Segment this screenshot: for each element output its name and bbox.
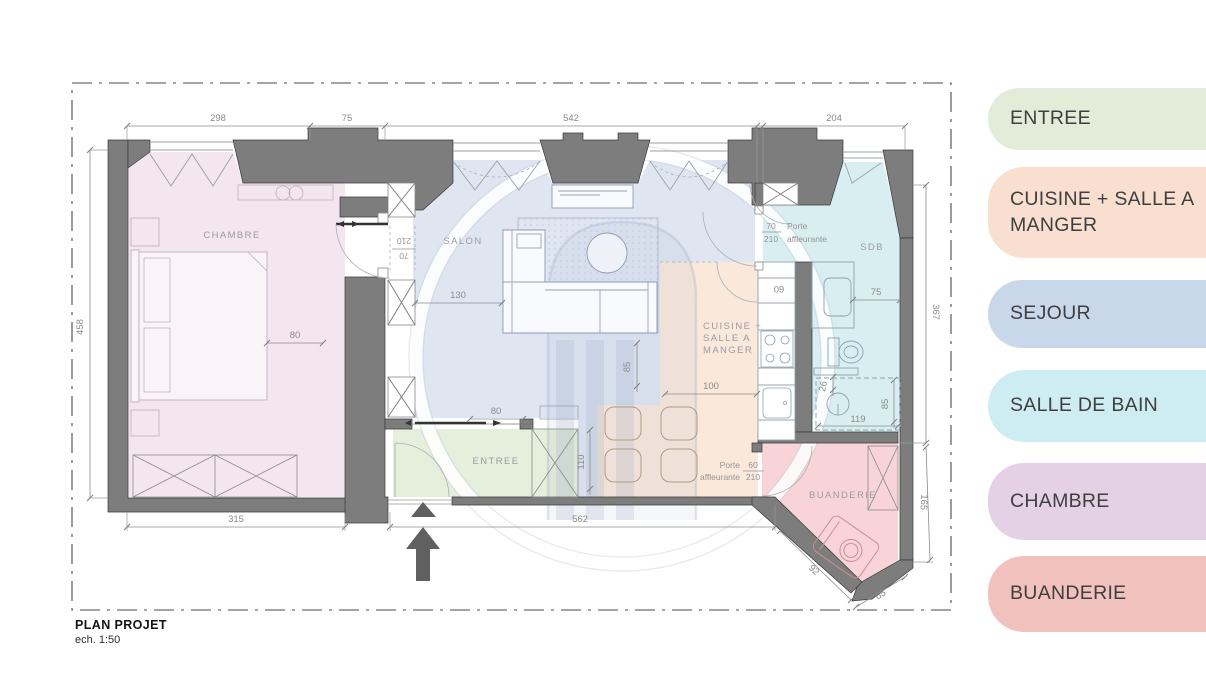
screenshot-root: 298 75 542 204 458 315 562 367 165 92 65…: [0, 0, 1206, 700]
entrance-marker: [406, 502, 440, 581]
label-salon: SALON: [443, 236, 482, 247]
svg-text:70: 70: [766, 221, 776, 231]
label-cuisine-2: SALLE A: [703, 333, 751, 344]
legend-label: ENTREE: [1010, 106, 1206, 131]
title-block: PLAN PROJET ech. 1:50: [75, 618, 167, 646]
legend-item-entree: ENTREE: [988, 88, 1206, 150]
legend-label: SEJOUR: [1010, 301, 1206, 326]
legend-item-salle-de-bain: SALLE DE BAIN: [988, 370, 1206, 442]
dim-salon-130: 130: [450, 290, 466, 301]
dim-entree-110: 110: [576, 454, 587, 469]
legend-item-cuisine: CUISINE + SALLE A MANGER: [988, 167, 1206, 258]
dim-entree-80: 80: [491, 406, 502, 417]
dim-bottom-562: 562: [572, 514, 588, 525]
legend-item-sejour: SEJOUR: [988, 280, 1206, 348]
dim-top-298: 298: [210, 113, 226, 124]
wall-right: [900, 238, 913, 560]
wall-top-mass-b: [540, 133, 650, 183]
shaft: [388, 377, 415, 417]
door-jamb: [378, 213, 388, 223]
svg-text:affleurante: affleurante: [787, 234, 827, 244]
svg-text:60: 60: [748, 460, 758, 470]
dim-shower-85: 85: [880, 399, 891, 410]
bed: [131, 250, 267, 402]
svg-text:70: 70: [399, 251, 409, 261]
dim-right-367: 367: [930, 304, 941, 320]
dim-sdb-26: 26: [817, 380, 830, 393]
dim-top-542: 542: [563, 113, 579, 124]
shaft: [388, 280, 415, 325]
svg-text:affleurante: affleurante: [700, 472, 740, 482]
wall-bay-band: [345, 277, 388, 523]
legend-label: CHAMBRE: [1010, 489, 1206, 514]
svg-text:Porte: Porte: [787, 221, 808, 231]
dim-dining-85: 85: [622, 362, 633, 373]
wall-bottom: [452, 497, 770, 505]
svg-text:Porte: Porte: [720, 460, 741, 470]
shaft: [388, 183, 415, 217]
dim-right-165: 165: [917, 494, 929, 511]
coffee-table: [587, 233, 627, 273]
label-cuisine-1: CUISINE +: [703, 321, 762, 332]
door-jamb: [378, 268, 388, 278]
door-label-chambre: 70 210: [392, 236, 416, 261]
dim-sdb-75: 75: [871, 287, 882, 298]
legend-item-buanderie: BUANDERIE: [988, 556, 1206, 632]
legend-label: BUANDERIE: [1010, 581, 1206, 606]
svg-text:210: 210: [746, 472, 760, 482]
plan-title: PLAN PROJET: [75, 618, 167, 632]
legend-item-chambre: CHAMBRE: [988, 463, 1206, 540]
plan-scale: ech. 1:50: [75, 634, 167, 646]
threshold: [388, 500, 452, 504]
entrance-arrow: [406, 527, 440, 581]
wall-cuisine-sdb: [795, 262, 812, 432]
label-buanderie: BUANDERIE: [809, 490, 877, 501]
legend-label: SALLE DE BAIN: [1010, 393, 1206, 418]
shaft: [763, 183, 798, 205]
label-chambre: CHAMBRE: [203, 230, 260, 241]
legend-label: CUISINE + SALLE A MANGER: [1010, 187, 1206, 238]
tv-unit: [552, 185, 633, 208]
dim-top-75: 75: [342, 113, 353, 124]
dim-bottom-315: 315: [228, 514, 244, 525]
dim-shower-119: 119: [850, 414, 865, 425]
dim-top-204: 204: [826, 113, 842, 124]
label-entree: ENTREE: [473, 456, 520, 467]
dim-kitchen-60: 60: [774, 283, 785, 294]
dim-chambre-80: 80: [290, 330, 301, 341]
svg-text:210: 210: [397, 236, 411, 246]
svg-text:210: 210: [764, 234, 778, 244]
dim-left-458: 458: [75, 319, 86, 335]
dim-dining-100: 100: [703, 381, 719, 392]
label-cuisine-3: MANGER: [703, 345, 753, 356]
label-sdb: SDB: [860, 242, 884, 253]
